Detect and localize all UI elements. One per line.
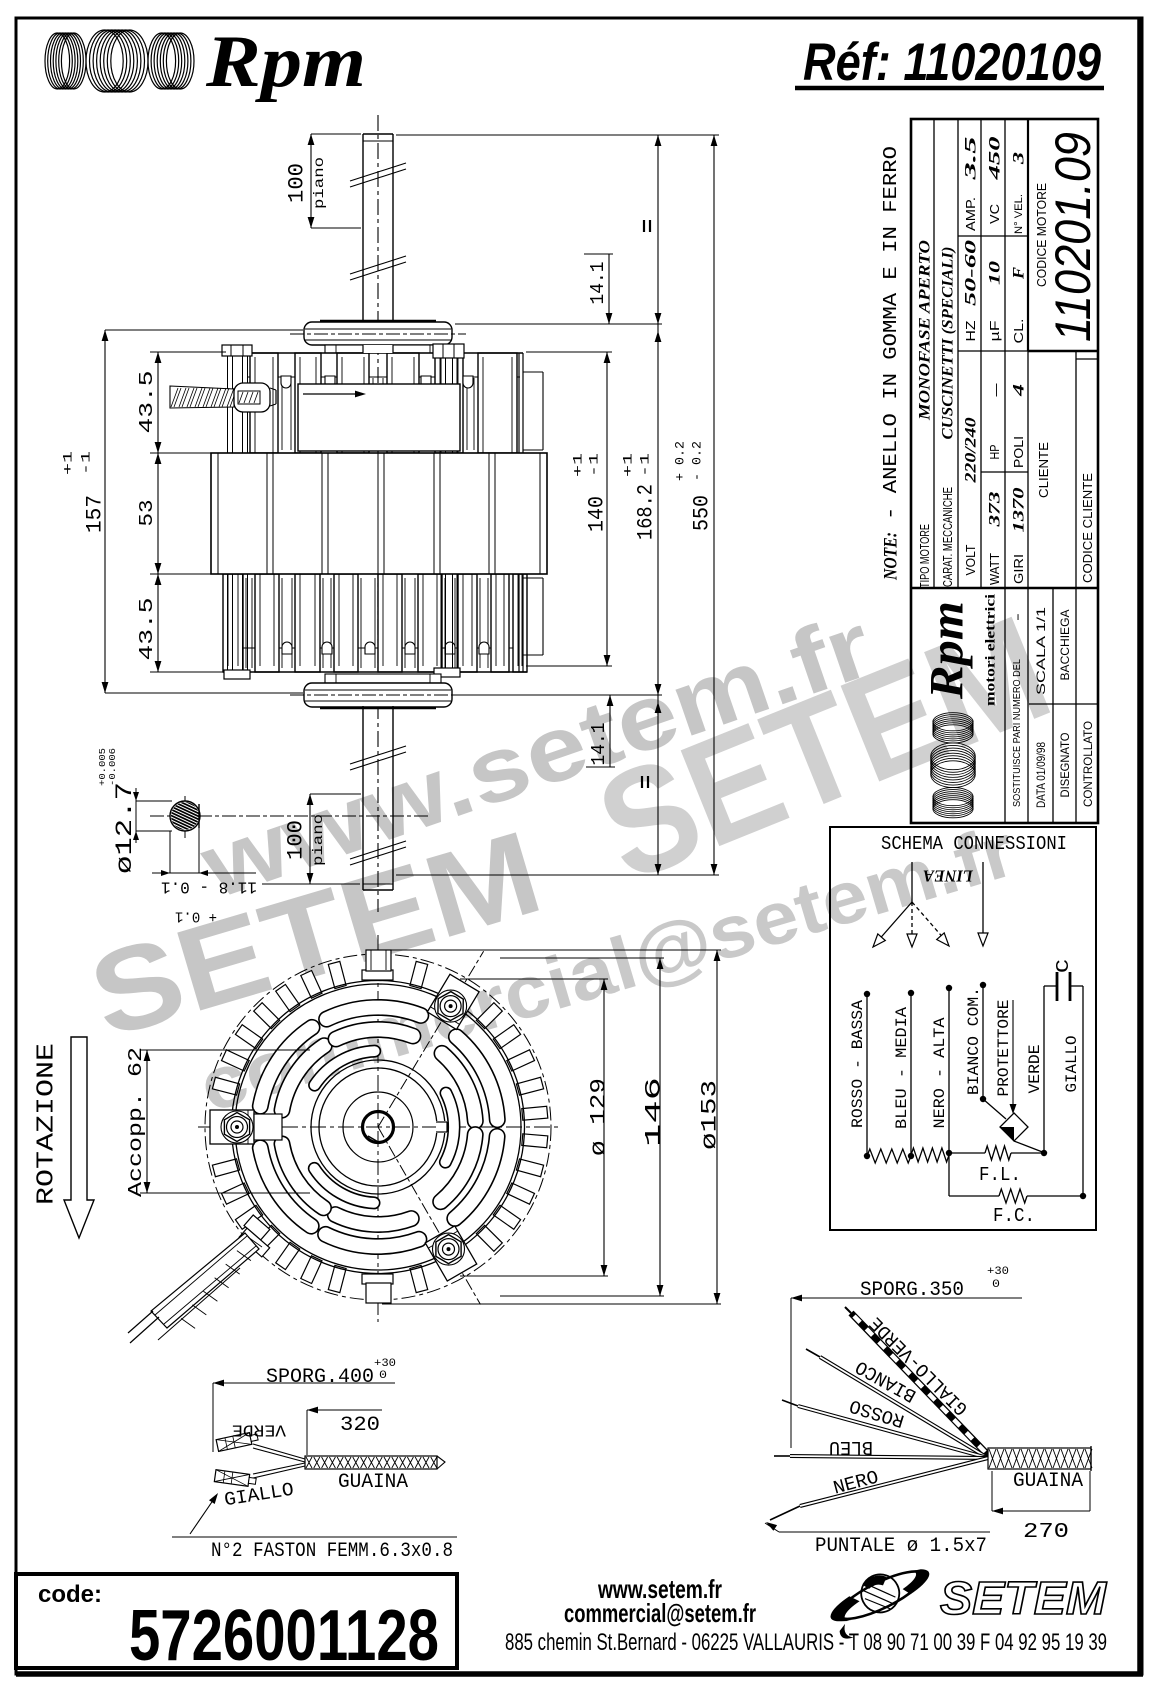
svg-text:motori elettrici: motori elettrici [984,594,999,706]
svg-text:43.5: 43.5 [136,371,158,434]
svg-text:14.1: 14.1 [587,262,609,305]
svg-text:HP: HP [988,445,1002,460]
svg-text:GIALLO: GIALLO [1063,1036,1081,1093]
svg-text:F.L.: F.L. [979,1164,1021,1186]
svg-text:N°2 FASTON FEMM.6.3x0.8: N°2 FASTON FEMM.6.3x0.8 [211,1540,453,1563]
svg-text:100: 100 [285,163,310,203]
svg-text:3.5: 3.5 [963,137,980,182]
svg-text:SETEM: SETEM [940,1572,1108,1624]
svg-text:piano: piano [312,157,328,209]
svg-text:+0.005: +0.005 [98,748,108,786]
svg-text:Rpm: Rpm [205,21,366,103]
svg-text:320: 320 [340,1414,380,1437]
svg-text:-1: -1 [587,453,602,477]
svg-text:code:: code: [38,1581,102,1608]
svg-text:ø153: ø153 [698,1080,723,1150]
svg-text:Rpm: Rpm [921,601,974,700]
svg-text:DISEGNATO: DISEGNATO [1058,733,1072,798]
svg-text:14.1: 14.1 [588,723,610,766]
svg-text:ø12.7: ø12.7 [112,782,138,874]
svg-text:+1: +1 [61,451,76,475]
svg-text:F.C.: F.C. [993,1205,1035,1227]
svg-text:BLEU - MEDIA: BLEU - MEDIA [893,1007,911,1129]
svg-text:-0.006: -0.006 [108,748,118,786]
svg-text:110201.09: 110201.09 [1045,132,1101,342]
svg-text:PROTETTORE: PROTETTORE [995,1000,1013,1097]
svg-text:HZ: HZ [964,320,978,341]
svg-text:commercial@setem.fr: commercial@setem.fr [564,1598,756,1628]
svg-text:WATT: WATT [988,553,1002,585]
svg-text:550: 550 [690,495,715,531]
svg-text:1370: 1370 [1011,488,1028,533]
svg-text:146: 146 [642,1077,667,1147]
svg-text:53: 53 [136,500,158,527]
svg-text:ROTAZIONE: ROTAZIONE [34,1043,61,1205]
svg-text:—: — [987,384,1003,397]
svg-text:4: 4 [1011,384,1028,398]
svg-text:-: - [1010,613,1024,621]
svg-text:C: C [1054,959,1074,973]
svg-text:CARAT. MECCANICHE: CARAT. MECCANICHE [941,487,955,587]
svg-text:5726001128: 5726001128 [129,1596,439,1676]
svg-text:SPORG.350: SPORG.350 [860,1279,964,1302]
svg-text:VOLT: VOLT [964,544,978,575]
svg-text:PUNTALE ø 1.5x7: PUNTALE ø 1.5x7 [815,1535,987,1558]
svg-text:piano: piano [311,814,327,866]
svg-text:3: 3 [1011,152,1028,166]
svg-text:50-60: 50-60 [963,240,980,306]
svg-text:F: F [1011,267,1028,280]
svg-text:168.2: 168.2 [634,484,659,540]
svg-text:Accopp. 62: Accopp. 62 [125,1047,147,1197]
svg-text:µF: µF [988,320,1002,342]
svg-text:0: 0 [379,1370,387,1382]
svg-text:CLIENTE: CLIENTE [1037,442,1051,498]
svg-text:LINEA: LINEA [923,867,974,886]
svg-text:CODICE CLIENTE: CODICE CLIENTE [1081,473,1095,583]
svg-text:270: 270 [1023,1521,1069,1544]
svg-text:157: 157 [83,495,108,533]
svg-text:43.5: 43.5 [136,598,158,661]
svg-text:+1: +1 [621,453,636,477]
svg-text:0: 0 [992,1279,1000,1291]
svg-text:SPORG.400: SPORG.400 [266,1366,374,1389]
svg-text:100: 100 [284,820,309,860]
svg-text:ø 129: ø 129 [587,1078,612,1156]
svg-text:VC: VC [988,204,1002,224]
svg-text:AMP.: AMP. [964,197,978,231]
svg-text:POLI: POLI [1012,436,1026,468]
svg-text:BIANCO COM.: BIANCO COM. [965,987,983,1095]
svg-text:+30: +30 [374,1358,396,1370]
svg-text:MONOFASE APERTO: MONOFASE APERTO [917,239,934,421]
svg-text:Réf: 11020109: Réf: 11020109 [803,33,1101,92]
svg-text:GIRI: GIRI [1012,554,1026,584]
svg-text:BLEU: BLEU [829,1436,873,1458]
svg-text:+ 0.1: + 0.1 [175,908,217,925]
svg-text:NERO - ALTA: NERO - ALTA [931,1017,949,1128]
svg-text:DATA 01/09/98: DATA 01/09/98 [1034,742,1048,808]
svg-text:SCHEMA CONNESSIONI: SCHEMA CONNESSIONI [881,833,1067,855]
svg-text:- ANELLO IN GOMMA E IN FERRO: - ANELLO IN GOMMA E IN FERRO [880,146,902,520]
svg-text:BACCHIEGA: BACCHIEGA [1058,610,1072,681]
svg-text:11.8 - 0.1: 11.8 - 0.1 [161,877,257,896]
svg-text:220/240: 220/240 [963,418,980,484]
svg-text:NOTE:: NOTE: [881,532,902,581]
svg-text:SOSTITUISCE PARI NUMERO DEL: SOSTITUISCE PARI NUMERO DEL [1011,659,1023,807]
svg-text:TIPO MOTORE: TIPO MOTORE [918,524,932,588]
svg-text:- 0.2: - 0.2 [690,441,705,481]
svg-text:N° VEL.: N° VEL. [1013,194,1025,234]
svg-text:CL.: CL. [1012,319,1026,344]
svg-text:ROSSO - BASSA: ROSSO - BASSA [849,1000,867,1128]
svg-text:GUAINA: GUAINA [1013,1470,1083,1493]
svg-text:CUSCINETTI (SPECIALI): CUSCINETTI (SPECIALI) [940,247,957,440]
svg-text:+1: +1 [571,453,586,477]
svg-text:VERDE: VERDE [1026,1045,1044,1094]
svg-text:885 chemin St.Bernard - 0622: 885 chemin St.Bernard - 06225 VALLAURIS … [505,1629,1107,1656]
svg-text:-1: -1 [79,451,94,475]
svg-text:10: 10 [987,261,1004,285]
svg-text:450: 450 [987,137,1004,182]
svg-text:-1: -1 [638,453,653,477]
svg-text:373: 373 [987,492,1004,528]
svg-text:140: 140 [585,496,610,532]
svg-text:+30: +30 [987,1266,1009,1278]
svg-text:VERDE: VERDE [232,1420,286,1439]
svg-text:GUAINA: GUAINA [338,1471,408,1494]
svg-text:CONTROLLATO: CONTROLLATO [1081,721,1095,807]
svg-text:+ 0.2: + 0.2 [673,441,688,481]
svg-text:SCALA 1/1: SCALA 1/1 [1034,607,1048,695]
